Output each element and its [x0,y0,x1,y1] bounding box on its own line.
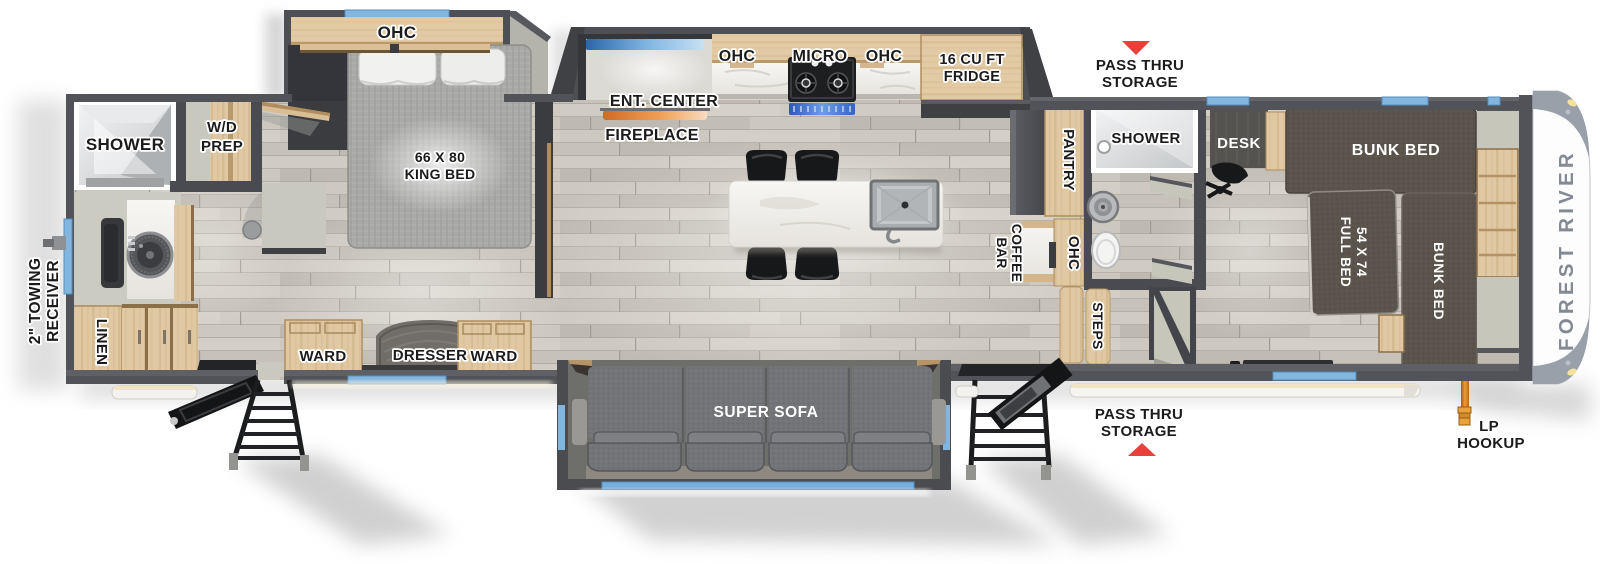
svg-text:BAR: BAR [994,237,1010,268]
svg-text:66 X 80: 66 X 80 [415,149,465,165]
svg-text:OHC: OHC [378,23,417,42]
svg-text:54 X 74: 54 X 74 [1354,227,1369,277]
svg-text:KING BED: KING BED [405,166,476,182]
svg-text:STEPS: STEPS [1090,302,1106,349]
svg-text:SHOWER: SHOWER [1111,130,1180,147]
svg-text:BUNK BED: BUNK BED [1431,242,1447,320]
svg-text:2" TOWING: 2" TOWING [27,258,44,344]
svg-text:SUPER SOFA: SUPER SOFA [714,404,819,421]
svg-text:FOREST RIVER: FOREST RIVER [1555,149,1578,351]
svg-text:STORAGE: STORAGE [1102,74,1178,91]
svg-text:FRIDGE: FRIDGE [944,69,1001,85]
svg-text:DESK: DESK [1217,135,1261,152]
svg-text:FIREPLACE: FIREPLACE [605,127,698,144]
svg-text:W/D: W/D [207,119,237,136]
svg-text:BUNK BED: BUNK BED [1352,142,1440,159]
svg-text:WARD: WARD [299,348,346,365]
svg-text:LINEN: LINEN [93,319,110,366]
svg-text:RECEIVER: RECEIVER [45,260,62,342]
svg-text:PREP: PREP [201,138,243,155]
svg-text:OHC: OHC [1065,236,1082,270]
svg-text:FULL BED: FULL BED [1338,217,1353,288]
svg-text:16 CU FT: 16 CU FT [939,52,1004,68]
svg-text:COFFEE: COFFEE [1009,224,1025,283]
svg-text:OHC: OHC [866,48,903,65]
svg-text:OHC: OHC [719,48,756,65]
svg-text:DRESSER: DRESSER [393,347,468,364]
svg-text:ENT. CENTER: ENT. CENTER [610,93,718,110]
svg-text:SHOWER: SHOWER [86,135,164,154]
svg-text:LP: LP [1479,418,1499,435]
svg-text:PASS THRU: PASS THRU [1096,57,1184,74]
svg-text:PASS THRU: PASS THRU [1095,406,1183,423]
svg-text:WARD: WARD [470,348,517,365]
svg-text:STORAGE: STORAGE [1101,423,1177,440]
svg-text:MICRO: MICRO [793,48,848,65]
svg-text:PANTRY: PANTRY [1060,129,1077,191]
svg-text:HOOKUP: HOOKUP [1457,435,1525,452]
